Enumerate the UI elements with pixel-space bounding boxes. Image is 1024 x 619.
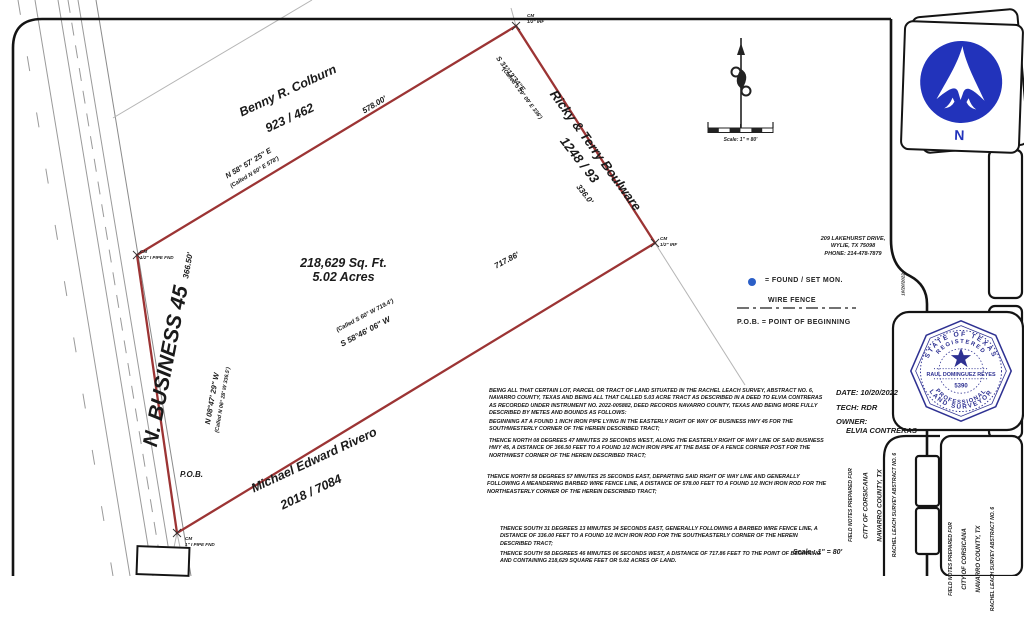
sidebar2-line-4: RACHEL LEACH SURVEY ABSTRACT NO. 6 — [990, 499, 996, 619]
monument-nw: CM 1/2" I PIPE FND — [140, 249, 174, 260]
sidebar-line-4: RACHEL LEACH SURVEY ABSTRACT NO. 6 — [892, 435, 898, 575]
legend-found-label: = FOUND / SET MON. — [765, 277, 843, 284]
parcel-area-label: 218,629 Sq. Ft. 5.02 Acres — [296, 256, 391, 285]
legal-paragraph-3: THENCE NORTH 08 DEGREES 47 MINUTES 29 SE… — [489, 438, 829, 460]
sidebar-line-3: NAVARRO COUNTY, TX — [877, 436, 884, 576]
legal-paragraph-4: THENCE NORTH 58 DEGREES 57 MINUTES 25 SE… — [487, 474, 827, 496]
seal-star-icon — [951, 348, 971, 367]
monument-south: CM 1" I PIPE FND — [185, 536, 215, 547]
owner-name: ELVIA CONTRERAS — [846, 426, 917, 435]
north-arrow-icon: Scale: 1" = 80' — [700, 25, 790, 145]
legal-paragraph-6: THENCE SOUTH 58 DEGREES 46 MINUTES 06 SE… — [500, 551, 830, 566]
seal-name-text: RAUL DOMINGUEZ REYES — [926, 372, 995, 378]
sidebar2-line-3: NAVARRO COUNTY, TX — [976, 499, 982, 619]
legend-monument-dot-icon — [748, 278, 756, 286]
north-logo-icon: N — [902, 22, 1022, 152]
sidebar-line-2: CITY OF CORSICANA — [863, 436, 870, 576]
pob-label: P.O.B. — [180, 470, 203, 479]
sidebar-line-1: FIELD NOTES PREPARED FOR — [848, 435, 854, 575]
seal-number-text: 5390 — [954, 383, 968, 389]
legal-paragraph-2: BEGINNING AT A FOUND 1 INCH IRON PIPE LY… — [489, 419, 829, 434]
surveyor-seal: STATE OF TEXAS REGISTERED RAUL DOMINGUEZ… — [902, 316, 1020, 426]
structure-outline — [135, 545, 190, 577]
legal-paragraph-5: THENCE SOUTH 31 DEGREES 13 MINUTES 34 SE… — [500, 526, 830, 548]
owner-label: OWNER: — [836, 417, 867, 426]
area-acres: 5.02 Acres — [296, 270, 391, 284]
logo-n-label: N — [954, 127, 965, 143]
area-sqft: 218,629 Sq. Ft. — [296, 256, 391, 270]
scale-text: Scale : 1" = 80' — [793, 549, 842, 556]
tech-field: TECH: RDR — [836, 403, 877, 412]
date-field: DATE: 10/20/2022 — [836, 388, 898, 397]
legal-paragraph-1: BEING ALL THAT CERTAIN LOT, PARCEL OR TR… — [489, 388, 829, 417]
road-lines — [18, 0, 191, 576]
monument-north: CM 1/2" IRF — [527, 13, 544, 24]
monument-east: CM 1/2" IRF — [660, 236, 677, 247]
legend-wire-fence-label: WIRE FENCE — [768, 297, 816, 304]
survey-plat-page: { "plat": { "area_sqft": "218,629 Sq. Ft… — [0, 0, 1024, 576]
legend-pob-label: P.O.B. = POINT OF BEGINNING — [737, 319, 851, 326]
logo-card: N — [900, 20, 1024, 154]
sidebar2-line-2: CITY OF CORSICANA — [962, 499, 968, 619]
firm-address: 209 LAKEHURST DRIVE, WYLIE, TX 75098 PHO… — [800, 236, 906, 258]
scale-bar-label: Scale: 1" = 80' — [724, 137, 759, 143]
sidebar2-line-1: FIELD NOTES PREPARED FOR — [948, 499, 954, 619]
